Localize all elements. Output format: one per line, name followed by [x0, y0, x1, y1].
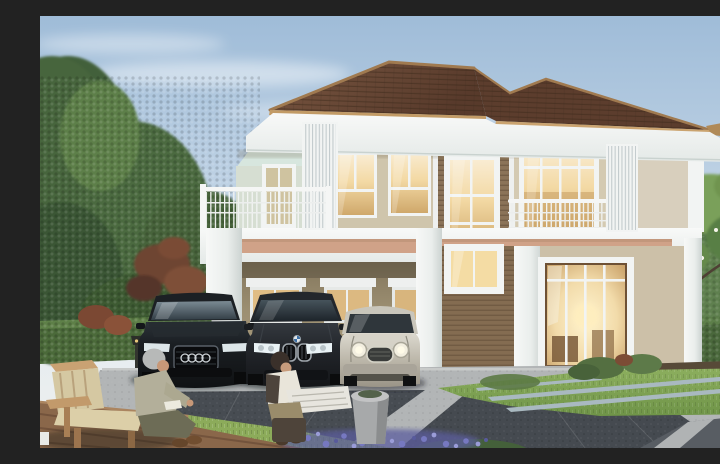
carport-lintel-shadow: [238, 262, 422, 278]
bmw-wheel-left: [248, 374, 263, 385]
red-shrub-2: [104, 315, 132, 335]
louver-screen-2: [606, 144, 638, 232]
planter: [351, 390, 389, 444]
mini-headlight-left: [352, 343, 367, 358]
corner-trim-ground: [684, 238, 702, 376]
mini-grille: [367, 347, 393, 362]
bmw-mirror-left: [244, 324, 253, 330]
man-face: [157, 360, 169, 372]
scene-svg: [40, 16, 720, 448]
mini-headlight-right: [394, 343, 409, 358]
audi-hood: [148, 322, 244, 337]
man-hand: [187, 400, 194, 407]
car-mini: [340, 306, 420, 387]
mini-lower-intake: [350, 374, 410, 381]
juliet-railing: [508, 199, 608, 231]
child-stool: [272, 418, 306, 442]
bmw-roundel: [293, 335, 300, 342]
wall-beige-right: [636, 154, 688, 232]
bench-leg-3: [128, 431, 135, 448]
bench-leg-1: [64, 407, 70, 437]
mini-wheel-left: [344, 376, 357, 386]
man-shoe-1: [186, 436, 202, 445]
man-shoe-2: [172, 439, 188, 448]
rendering-canvas: Daytime rendering of a modern two-story …: [40, 16, 720, 448]
entrance-door: [538, 257, 634, 371]
corner-trim-upper: [688, 152, 704, 232]
bench-leg-2: [74, 428, 81, 448]
child-vest: [266, 374, 280, 404]
audi-mirror-left: [136, 323, 145, 329]
cup: [40, 432, 49, 445]
mini-bumper: [343, 364, 417, 374]
mini-wheel-right: [403, 376, 416, 386]
stair-window: [444, 244, 504, 294]
audi-lower-intake: [160, 368, 232, 377]
audi-headlight-right: [222, 343, 248, 352]
terrace-railing: [200, 184, 332, 230]
